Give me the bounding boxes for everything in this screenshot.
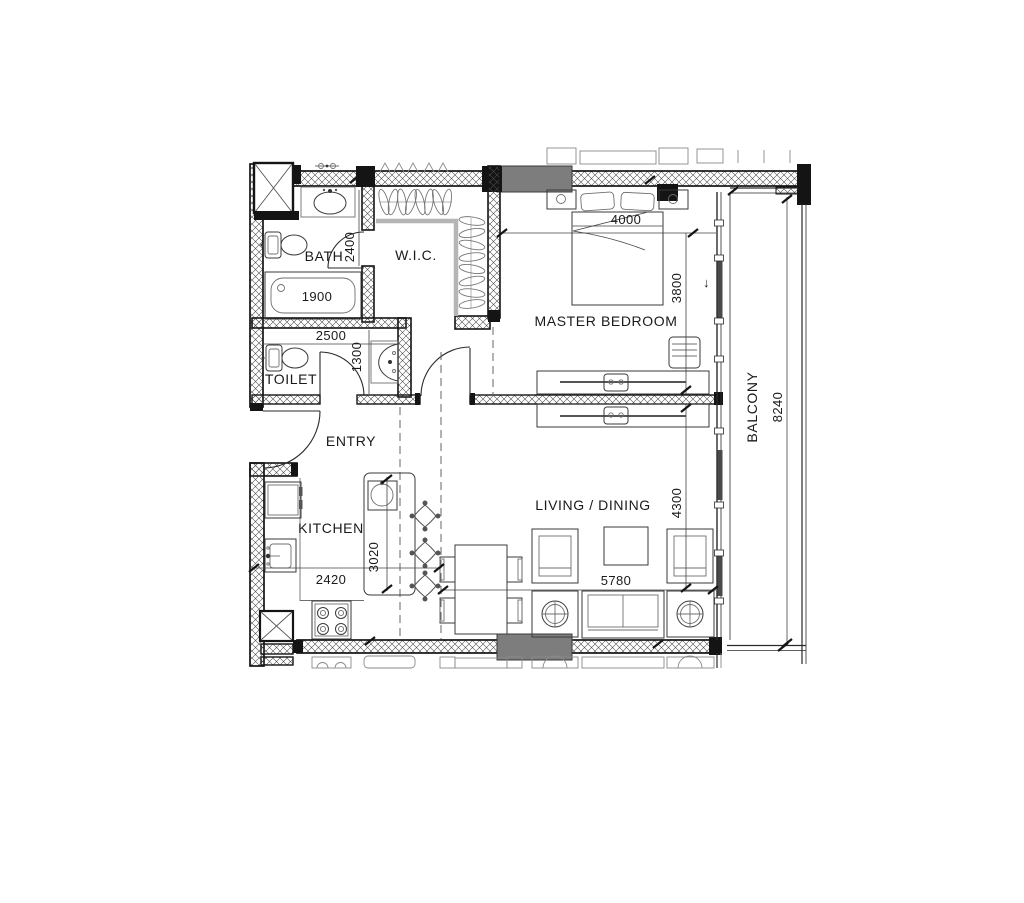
wall-toilet-bottom (252, 395, 320, 404)
wall-bath-right-low (362, 266, 374, 322)
wall-cap (291, 463, 298, 476)
shaft-top-left (254, 163, 299, 220)
wall-bedroom-living (470, 395, 722, 404)
wall-toilet-right (398, 318, 411, 397)
wall-cap (293, 640, 303, 653)
pillow (621, 192, 655, 211)
corner-top-right (797, 164, 811, 205)
dining-chair (440, 598, 455, 623)
wall-corridor-bottom (357, 395, 420, 404)
shaft-bottom-left (260, 611, 293, 665)
dim-text-bedroom-depth: 3800 (669, 273, 684, 304)
glass-wall: ↓ (703, 192, 730, 640)
wash-basin (371, 341, 398, 383)
wall-cap (714, 392, 723, 405)
nightstand (547, 190, 576, 209)
dim-text-living-depth: 4300 (669, 488, 684, 519)
unit-above-fragments (380, 148, 790, 172)
wall-cap (488, 310, 500, 322)
coffee-table (604, 527, 648, 565)
dresser (669, 337, 700, 368)
balcony-structure (727, 187, 806, 664)
armchair (667, 529, 713, 583)
bedroom-suite-door (421, 347, 470, 396)
side-table-lamp (667, 591, 714, 637)
stove (312, 601, 351, 639)
tv-console-living (537, 404, 709, 427)
dim-text-kitchen-width: 2420 (316, 572, 347, 587)
kitchen-island (364, 473, 415, 595)
dining-chair (507, 557, 522, 582)
room-label-balcony: BALCONY (744, 371, 760, 442)
dining-chair (507, 598, 522, 623)
vanity-counter (301, 187, 355, 217)
pillow (580, 192, 614, 211)
window-block-bottom (497, 634, 572, 660)
tv-console-bedroom (537, 371, 709, 394)
plumbing-risers (315, 164, 339, 169)
closet-hangers-top (377, 188, 453, 215)
closet-shelf (376, 221, 456, 316)
room-label-toilet: TOILET (265, 371, 317, 387)
door-jamb (415, 393, 420, 405)
room-label-bath: BATH (305, 248, 344, 264)
room-label-kitchen: KITCHEN (298, 520, 364, 536)
faucet (328, 189, 332, 193)
sliding-panel (718, 556, 723, 596)
dim-text-toilet-width: 2500 (316, 328, 347, 343)
dim-text-tub: 1900 (302, 289, 333, 304)
slide-direction-arrow-icon: ↓ (703, 275, 710, 290)
dining-chair (440, 557, 455, 582)
dining-table (455, 545, 507, 634)
armchair (532, 529, 578, 583)
dim-text-bedroom-width: 4000 (611, 212, 642, 227)
fridge (265, 482, 303, 518)
room-label-entry: ENTRY (326, 433, 376, 449)
kitchen-sink (265, 539, 296, 572)
dining-set (440, 545, 522, 634)
floor-plan-page: ↓ (0, 0, 1024, 903)
closet-hangers-right (458, 215, 485, 310)
dim-text-toilet-depth: 1300 (349, 342, 364, 373)
column-stub (657, 184, 678, 201)
walls-layer (250, 163, 811, 666)
vanity-sink (314, 192, 346, 214)
room-label-living-dining: LIVING / DINING (535, 497, 651, 513)
wall-cap (709, 637, 722, 655)
dim-text-bath-depth: 2400 (342, 232, 357, 263)
room-label-master-bedroom: MASTER BEDROOM (535, 313, 678, 329)
floor-plan-svg: ↓ (0, 0, 1024, 903)
wall-bath-right (362, 186, 374, 230)
dim-text-living-width: 5780 (601, 573, 632, 588)
window-block-top (497, 166, 572, 192)
sliding-panel (718, 260, 723, 318)
side-table-lamp (532, 591, 578, 637)
sofa (582, 591, 664, 638)
wall-bedroom-left (488, 166, 500, 318)
bath-wc (261, 232, 308, 258)
room-label-wic: W.I.C. (395, 247, 437, 263)
dim-text-balcony-length: 8240 (770, 392, 785, 423)
toilet-wc (262, 345, 309, 371)
sliding-panel (718, 450, 723, 500)
wall-wic-bottom (455, 316, 490, 329)
balcony-top-hatch (776, 187, 798, 194)
door-jamb (470, 393, 475, 405)
dim-text-kitchen-run: 3020 (366, 542, 381, 573)
living-furniture (440, 527, 714, 638)
entry-door (263, 411, 320, 468)
